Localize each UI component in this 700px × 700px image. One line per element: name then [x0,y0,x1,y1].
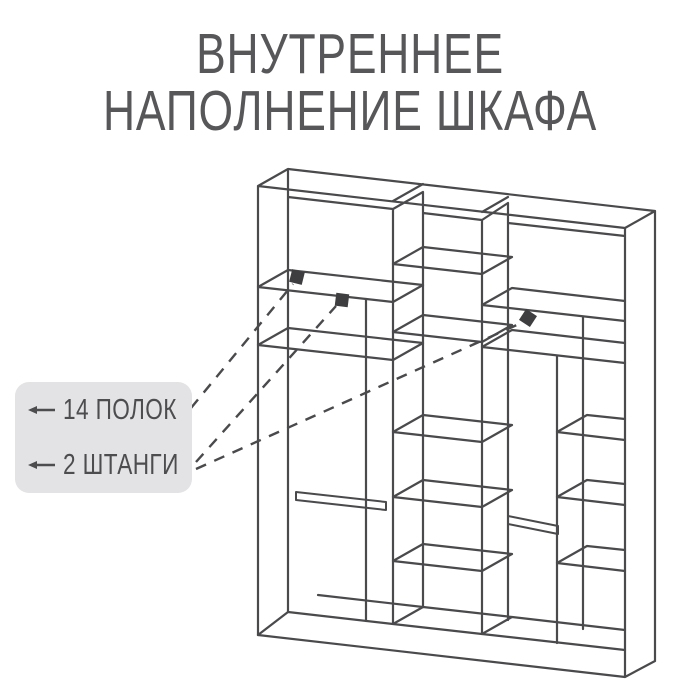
left-arrow-icon [28,459,56,471]
wardrobe-carcass [258,169,655,677]
wardrobe-shelves [258,247,625,650]
wardrobe-diagram [0,0,700,700]
callout-box: 14 ПОЛОК 2 ШТАНГИ [15,382,192,493]
rod-marker-left [335,293,349,307]
left-arrow-icon [28,404,56,416]
leader-line-shelves [191,284,293,408]
page: ВНУТРЕННЕЕ НАПОЛНЕНИЕ ШКАФА [0,0,700,700]
callout-row-shelves: 14 ПОЛОК [28,394,192,427]
callout-label-rods: 2 ШТАНГИ [63,449,179,482]
callout-label-shelves: 14 ПОЛОК [63,394,177,427]
leader-line-rod-right [196,324,519,469]
hanging-rods [296,492,558,534]
callout-row-rods: 2 ШТАНГИ [28,449,192,482]
leader-line-rod-left [196,306,336,462]
